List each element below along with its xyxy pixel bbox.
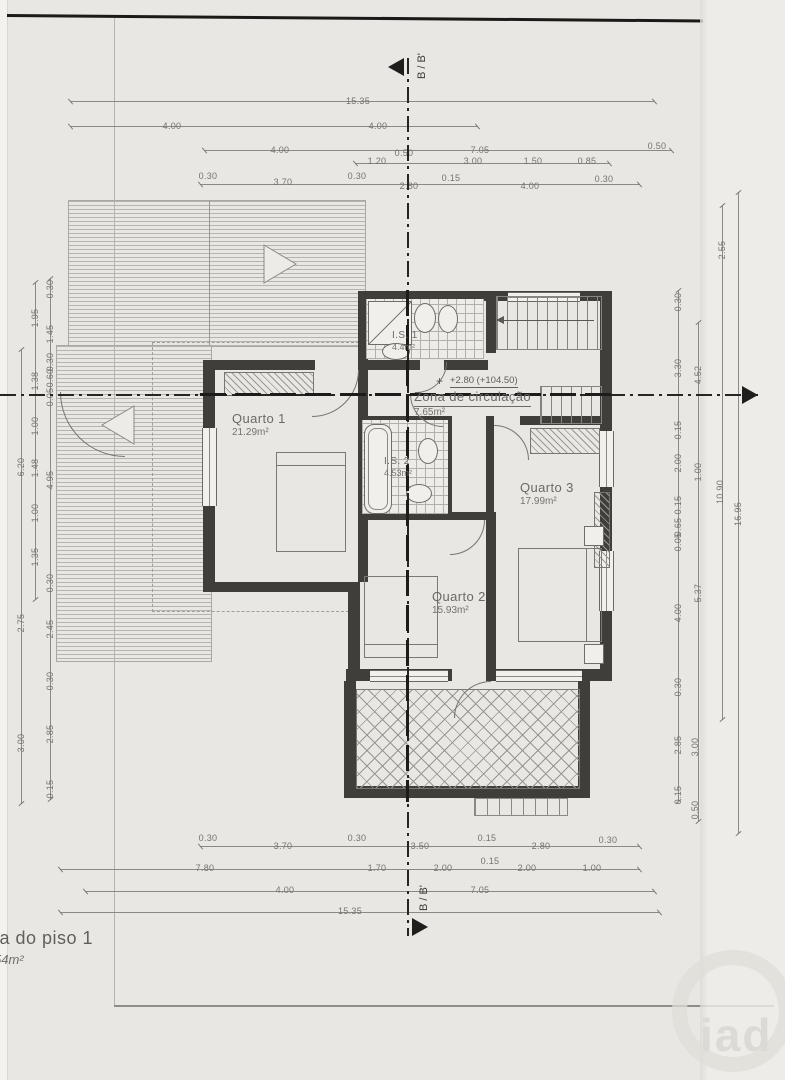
dim-label: 0.30 (595, 174, 614, 184)
dim-label: 0.85 (578, 156, 597, 166)
drawing-title-area: 54m² (0, 952, 93, 967)
dim-label: 4.00 (271, 145, 290, 155)
dim-label: 0.15 (673, 786, 683, 805)
dim-label: 1.45 (45, 325, 55, 344)
dim-label: 2.00 (434, 863, 453, 873)
room-area: 4.4m² (392, 342, 418, 352)
section-arrow-top-icon (388, 58, 404, 76)
dim-label: 0.15 (442, 173, 461, 183)
dim-line (722, 205, 723, 720)
dim-label: 5.37 (693, 584, 703, 603)
dim-label: 1.50 (524, 156, 543, 166)
dim-label: 0.15 (673, 496, 683, 515)
section-line-aa-bold (200, 393, 620, 396)
dim-label: 2.85 (673, 736, 683, 755)
room-name: I.S. 2 (384, 456, 412, 468)
dim-label: 1.00 (30, 417, 40, 436)
dim-label: 0.05 (45, 388, 55, 407)
dim-label: 2.00 (673, 454, 683, 473)
dim-label: 1.00 (30, 504, 40, 523)
room-area: 15.93m² (432, 605, 486, 617)
dim-label: 0.30 (45, 672, 55, 691)
dim-label: 3.00 (690, 738, 700, 757)
room-name: Quarto 3 (520, 481, 574, 496)
dim-line (200, 184, 640, 185)
room-label-quarto2: Quarto 2 15.93m² (432, 590, 486, 616)
dim-label: 0.15 (45, 780, 55, 799)
room-name: Quarto 1 (232, 412, 286, 427)
dim-label: 4.00 (276, 885, 295, 895)
dim-line (60, 869, 640, 870)
level-datum-icon: + (436, 374, 443, 388)
dim-label: 0.15 (478, 833, 497, 843)
dim-label: 4.00 (369, 121, 388, 131)
dim-label: 0.50 (648, 141, 667, 151)
dim-label: 1.70 (368, 863, 387, 873)
dim-label: 1.95 (30, 309, 40, 328)
dim-line (355, 163, 610, 164)
dim-label: 0.30 (348, 171, 367, 181)
dim-label: 0.30 (348, 833, 367, 843)
section-arrow-bottom-icon (412, 918, 428, 936)
dim-label: 7.80 (196, 863, 215, 873)
section-label-top: B / B' (416, 53, 428, 79)
dim-label: 2.45 (45, 620, 55, 639)
dim-label: 0.05 (673, 533, 683, 552)
dim-label: 3.70 (274, 841, 293, 851)
dim-label: 4.52 (693, 366, 703, 385)
dim-label: 1.20 (368, 156, 387, 166)
room-label-is2: I.S. 2 4.53m² (384, 456, 412, 478)
dim-label: 0.30 (673, 678, 683, 697)
dim-label: 3.30 (673, 359, 683, 378)
section-line-bb-bold (406, 290, 409, 802)
room-area: 7.65m² (414, 407, 531, 419)
dim-label: 0.30 (673, 293, 683, 312)
section-arrow-right-icon (742, 386, 758, 404)
drawing-title-text: ta do piso 1 (0, 928, 93, 949)
dim-label: 15.35 (338, 906, 362, 916)
dim-label: 0.50 (690, 801, 700, 820)
dim-label: 1.48 (30, 459, 40, 478)
dim-label: 0.30 (45, 280, 55, 299)
dim-label: 7.05 (471, 145, 490, 155)
room-area: 17.99m² (520, 496, 574, 508)
dim-label: 0.15 (481, 856, 500, 866)
dim-label: 2.80 (532, 841, 551, 851)
dim-label: 0.30 (199, 833, 218, 843)
dim-label: 2.80 (400, 181, 419, 191)
section-label-bottom: B / B' (418, 885, 430, 911)
room-label-quarto3: Quarto 3 17.99m² (520, 481, 574, 507)
dim-label: 3.50 (411, 841, 430, 851)
dim-label: 2.00 (518, 863, 537, 873)
room-area: 21.29m² (232, 427, 286, 439)
dim-label: 0.15 (673, 421, 683, 440)
dim-label: 0.50 (395, 148, 414, 158)
dim-label: 2.75 (16, 614, 26, 633)
scanned-floorplan-page: iad (0, 0, 785, 1080)
dim-label: 4.00 (673, 604, 683, 623)
dim-label: 3.00 (16, 734, 26, 753)
room-label-is1: I.S. 1 4.4m² (392, 330, 418, 352)
dim-label: 1.00 (693, 463, 703, 482)
room-name: I.S. 1 (392, 330, 418, 342)
room-name: Zona de circulação (414, 390, 531, 407)
room-label-hall: Zona de circulação 7.65m² (414, 390, 531, 418)
dim-label: 0.60 (45, 369, 55, 388)
dim-line (70, 126, 478, 127)
dim-label: 3.70 (274, 177, 293, 187)
dim-label: 6.20 (16, 458, 26, 477)
dim-label: 1.00 (583, 863, 602, 873)
dim-label: 0.30 (599, 835, 618, 845)
dim-label: 1.38 (30, 372, 40, 391)
dim-label: 3.00 (464, 156, 483, 166)
dim-label: 4.00 (163, 121, 182, 131)
drawing-title: ta do piso 1 54m² (0, 928, 93, 967)
dim-label: 4.00 (521, 181, 540, 191)
dim-label: 4.95 (45, 471, 55, 490)
dim-label: 7.05 (471, 885, 490, 895)
dim-label: 10.90 (715, 480, 725, 504)
room-label-quarto1: Quarto 1 21.29m² (232, 412, 286, 438)
dimension-layer: 15.354.004.004.007.050.501.200.503.001.5… (0, 0, 785, 1080)
dim-label: 15.35 (346, 96, 370, 106)
level-mark: +2.80 (+104.50) (450, 375, 518, 388)
dim-label: 2.55 (717, 241, 727, 260)
dim-line (85, 891, 655, 892)
dim-label: 0.30 (45, 574, 55, 593)
dim-label: 0.30 (199, 171, 218, 181)
dim-label: 16.95 (733, 502, 743, 526)
room-name: Quarto 2 (432, 590, 486, 605)
dim-label: 1.35 (30, 548, 40, 567)
room-area: 4.53m² (384, 468, 412, 478)
dim-label: 2.85 (45, 725, 55, 744)
